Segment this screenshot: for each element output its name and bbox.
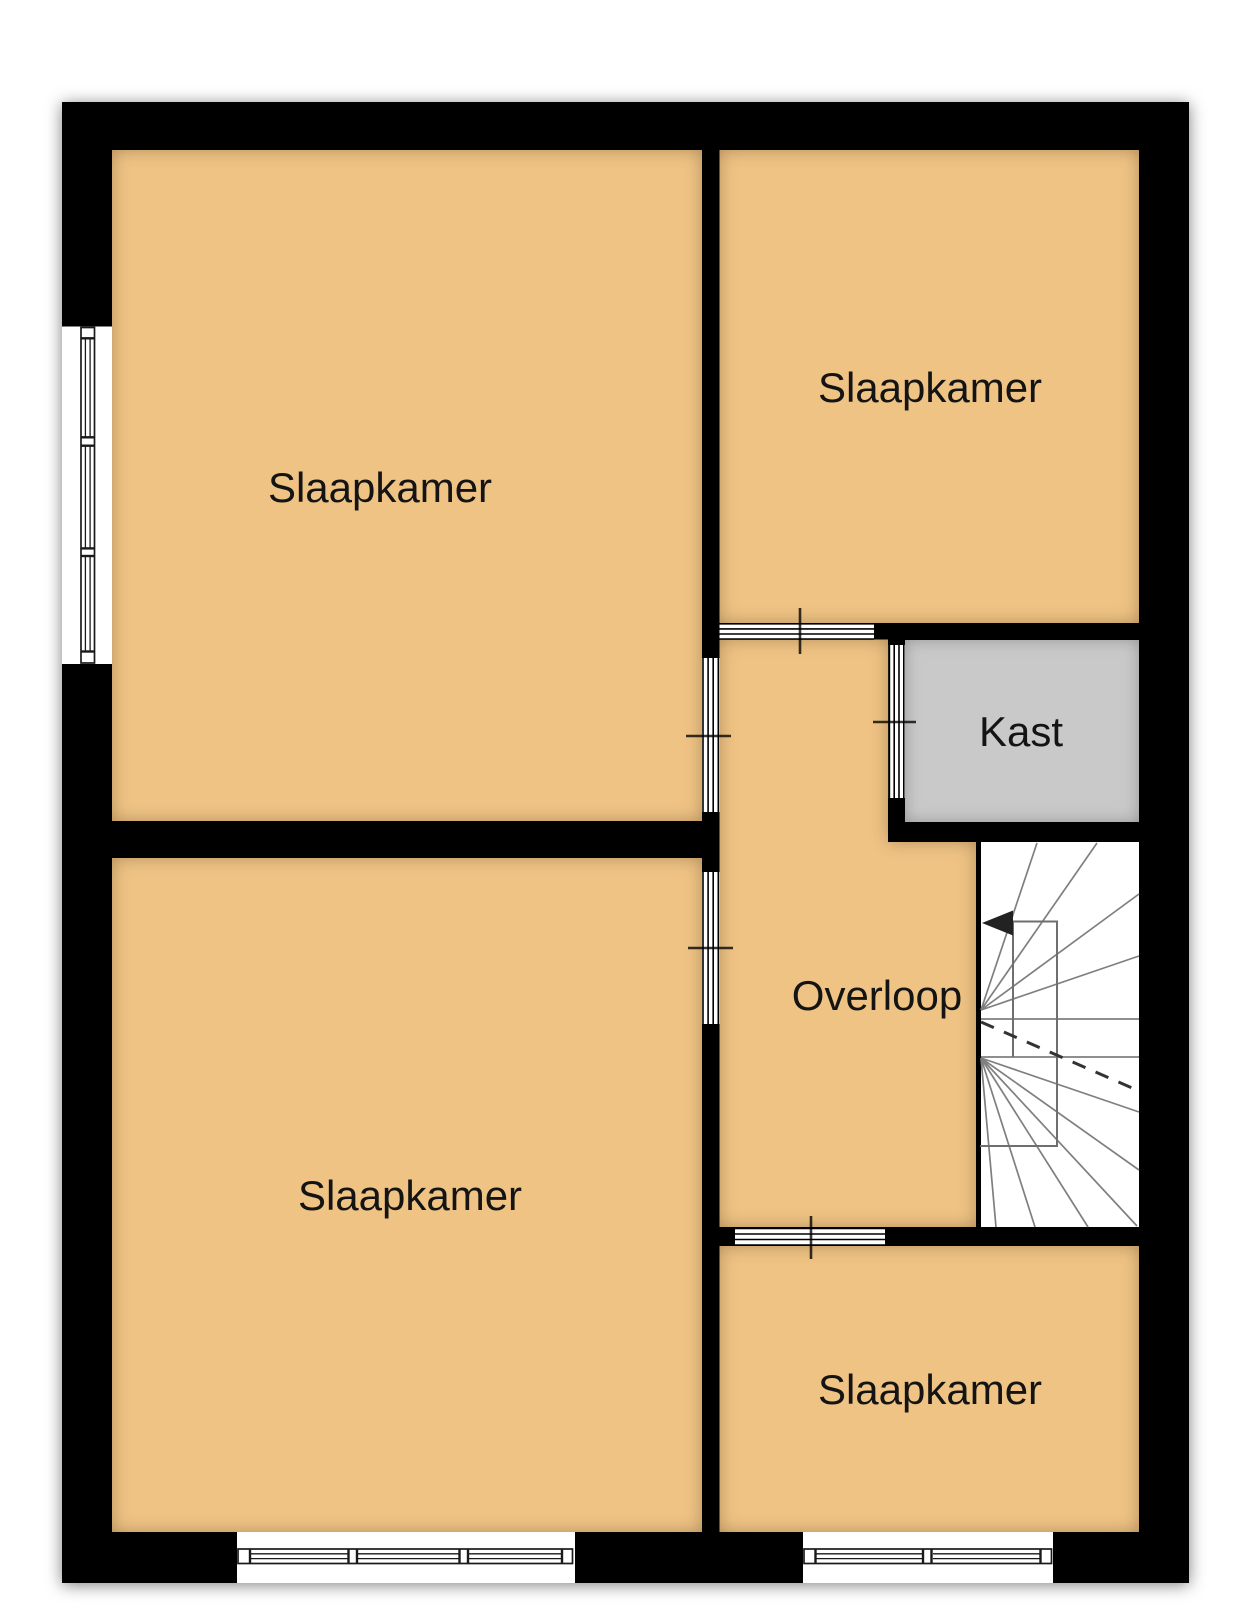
svg-text:Slaapkamer: Slaapkamer — [818, 1366, 1042, 1413]
svg-text:Slaapkamer: Slaapkamer — [268, 464, 492, 511]
svg-text:Kast: Kast — [979, 708, 1063, 755]
svg-text:Overloop: Overloop — [792, 972, 962, 1019]
svg-text:Slaapkamer: Slaapkamer — [818, 364, 1042, 411]
svg-text:Slaapkamer: Slaapkamer — [298, 1172, 522, 1219]
